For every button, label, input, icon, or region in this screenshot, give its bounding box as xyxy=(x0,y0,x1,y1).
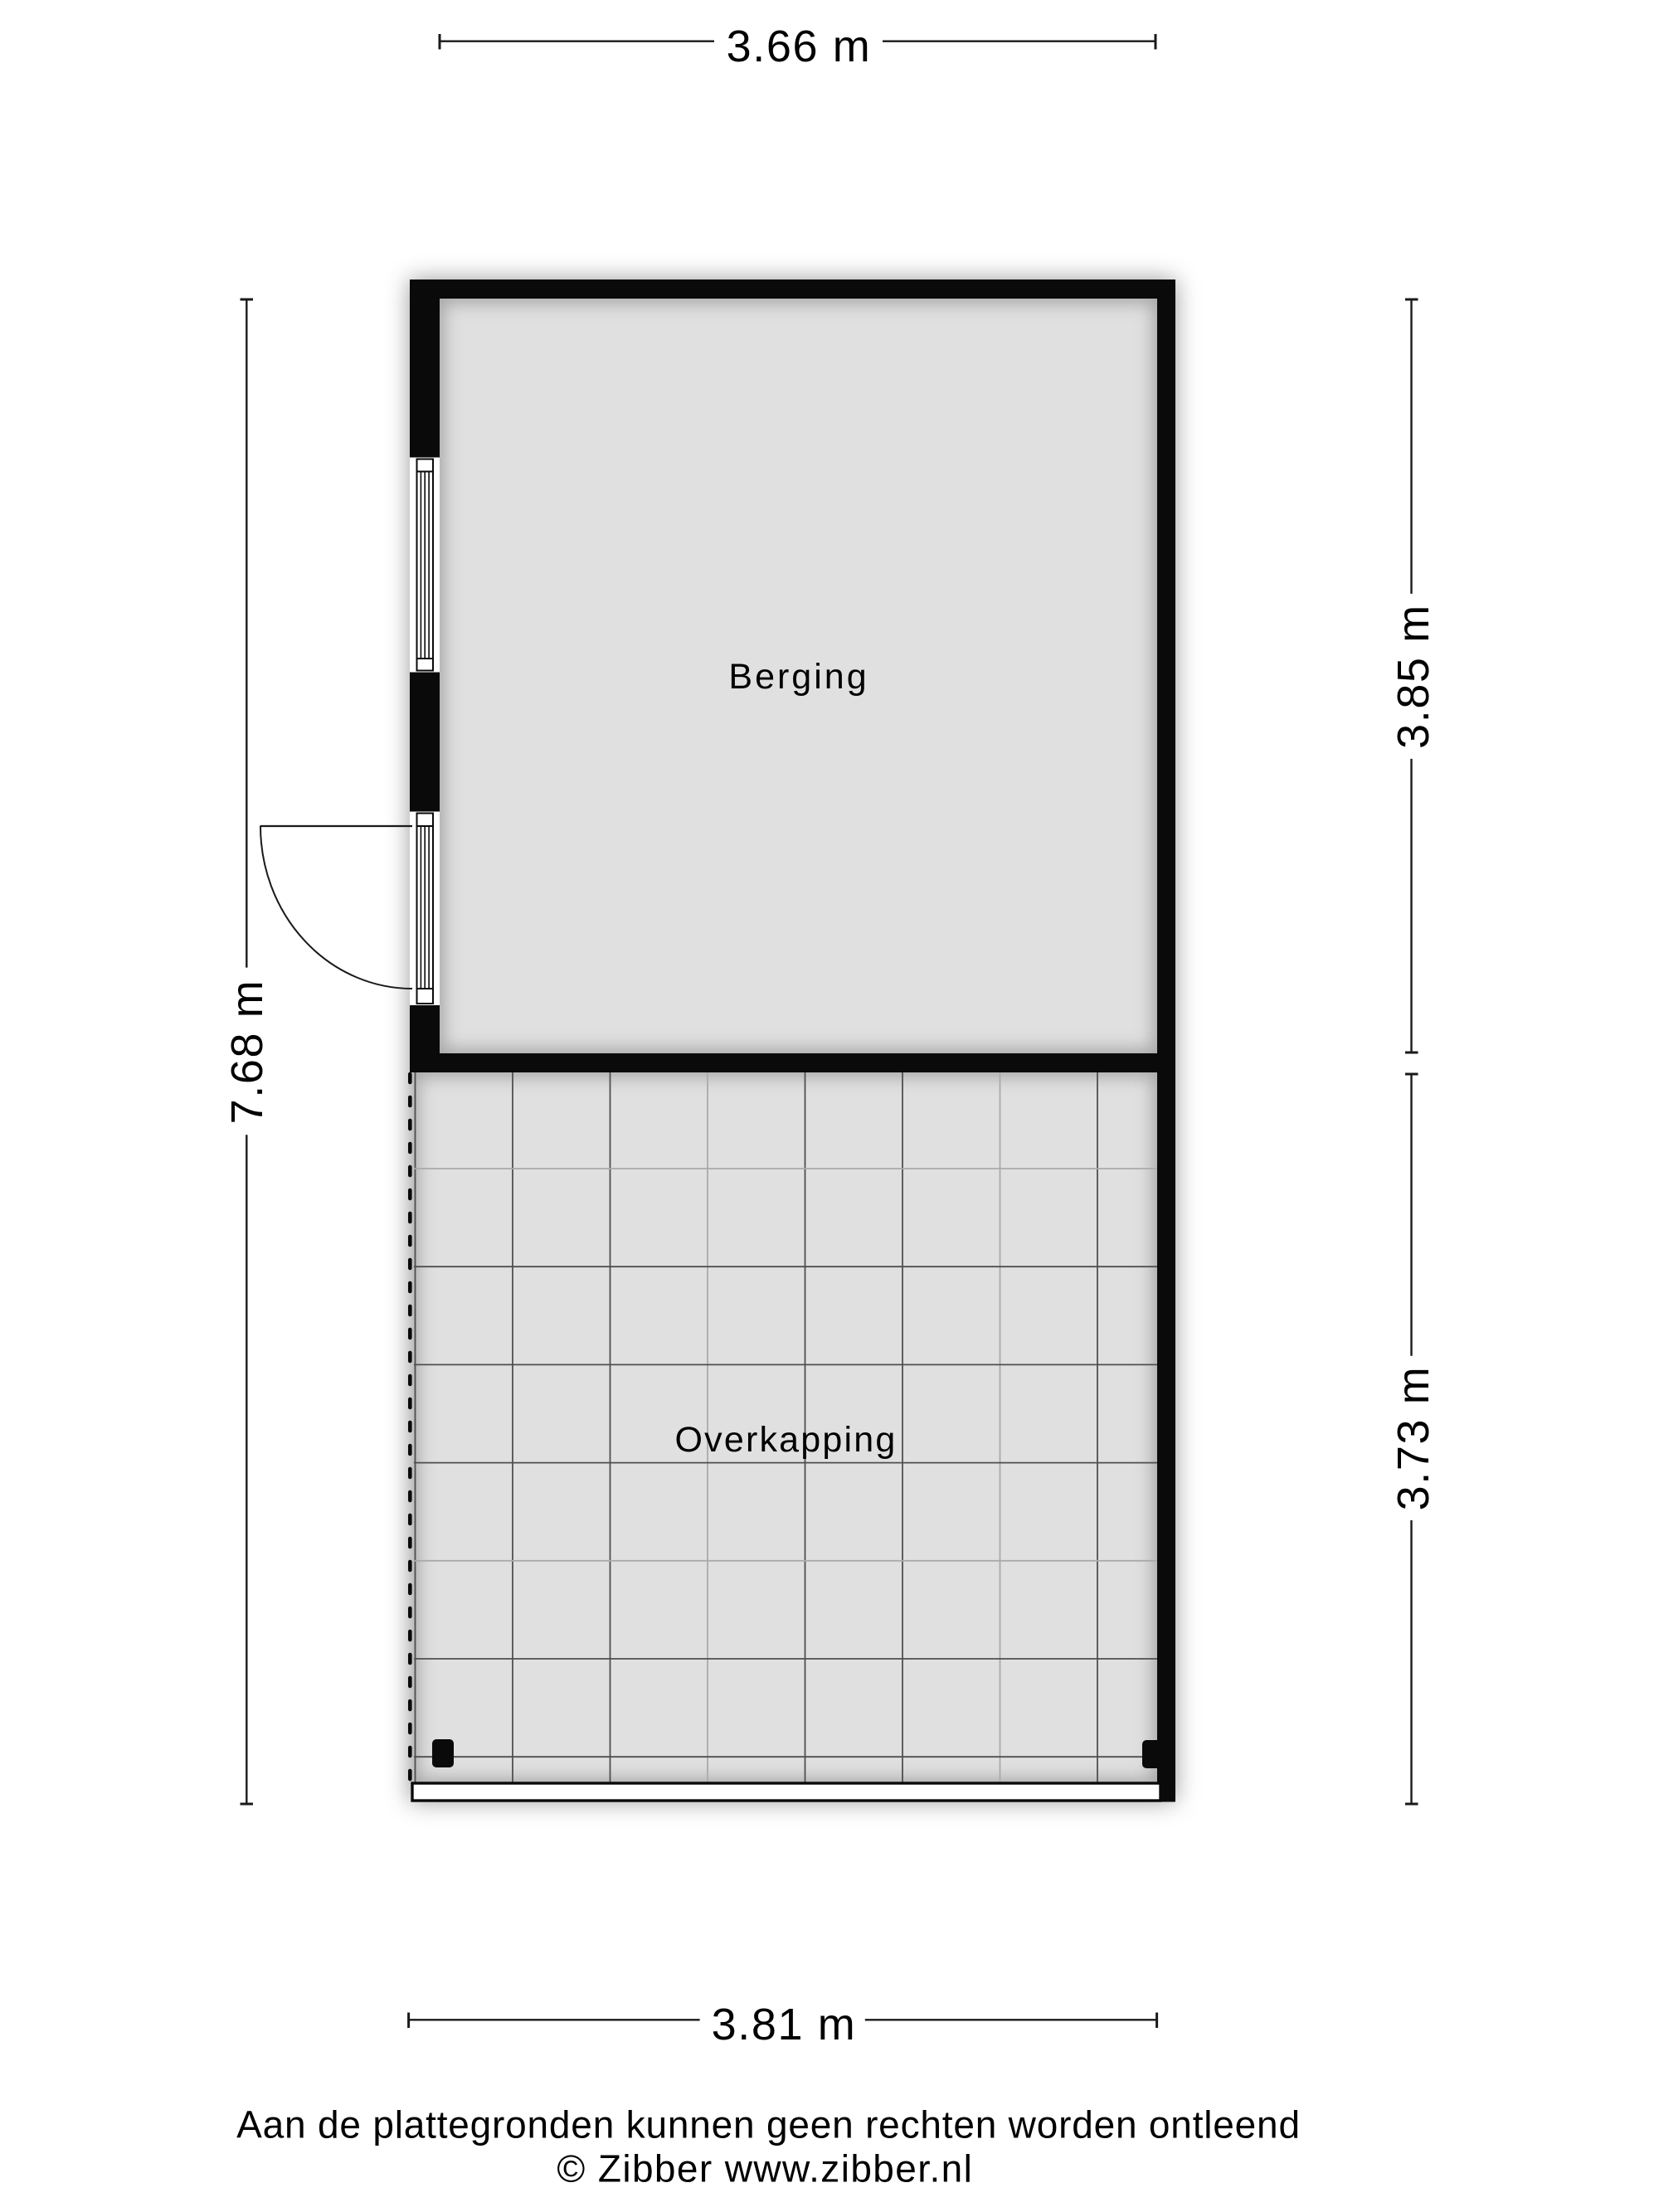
svg-text:3.66 m: 3.66 m xyxy=(727,22,872,71)
svg-text:Overkapping: Overkapping xyxy=(674,1420,897,1460)
svg-text:© Zibber www.zibber.nl: © Zibber www.zibber.nl xyxy=(557,2146,973,2190)
svg-text:Aan de plattegronden kunnen ge: Aan de plattegronden kunnen geen rechten… xyxy=(236,2103,1301,2146)
svg-text:3.81 m: 3.81 m xyxy=(712,2000,857,2049)
svg-text:3.73 m: 3.73 m xyxy=(1389,1366,1438,1511)
svg-text:3.85 m: 3.85 m xyxy=(1389,604,1438,749)
svg-text:7.68 m: 7.68 m xyxy=(222,980,272,1125)
svg-text:Berging: Berging xyxy=(728,657,868,697)
